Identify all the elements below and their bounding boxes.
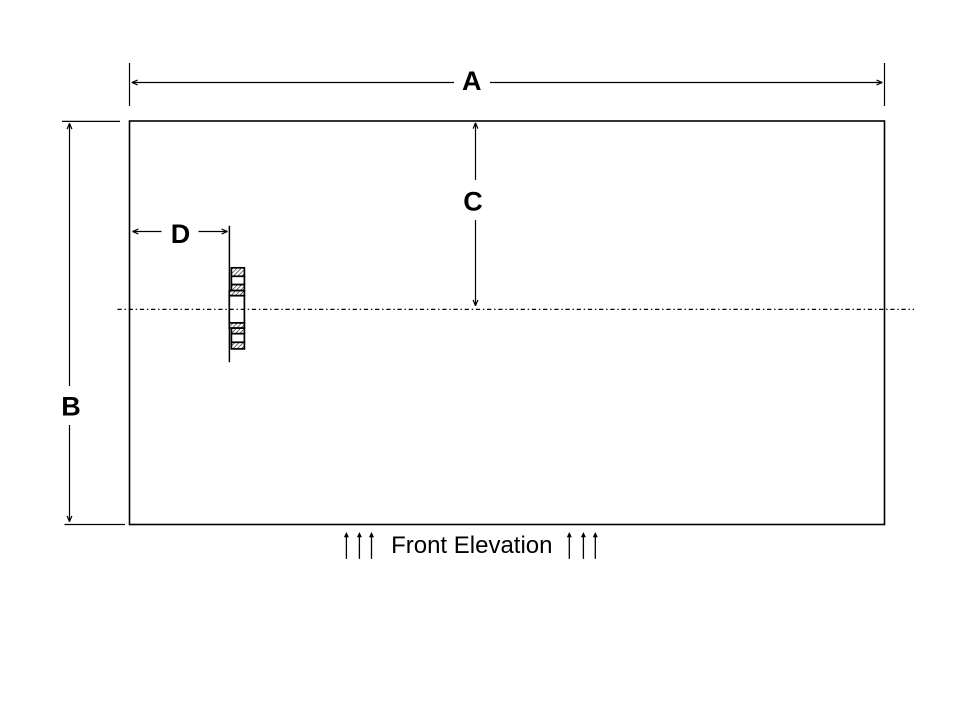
svg-text:C: C [463, 187, 483, 217]
svg-text:A: A [462, 66, 482, 96]
svg-text:Front Elevation: Front Elevation [391, 532, 552, 559]
svg-text:B: B [61, 392, 81, 422]
svg-text:D: D [171, 219, 191, 249]
